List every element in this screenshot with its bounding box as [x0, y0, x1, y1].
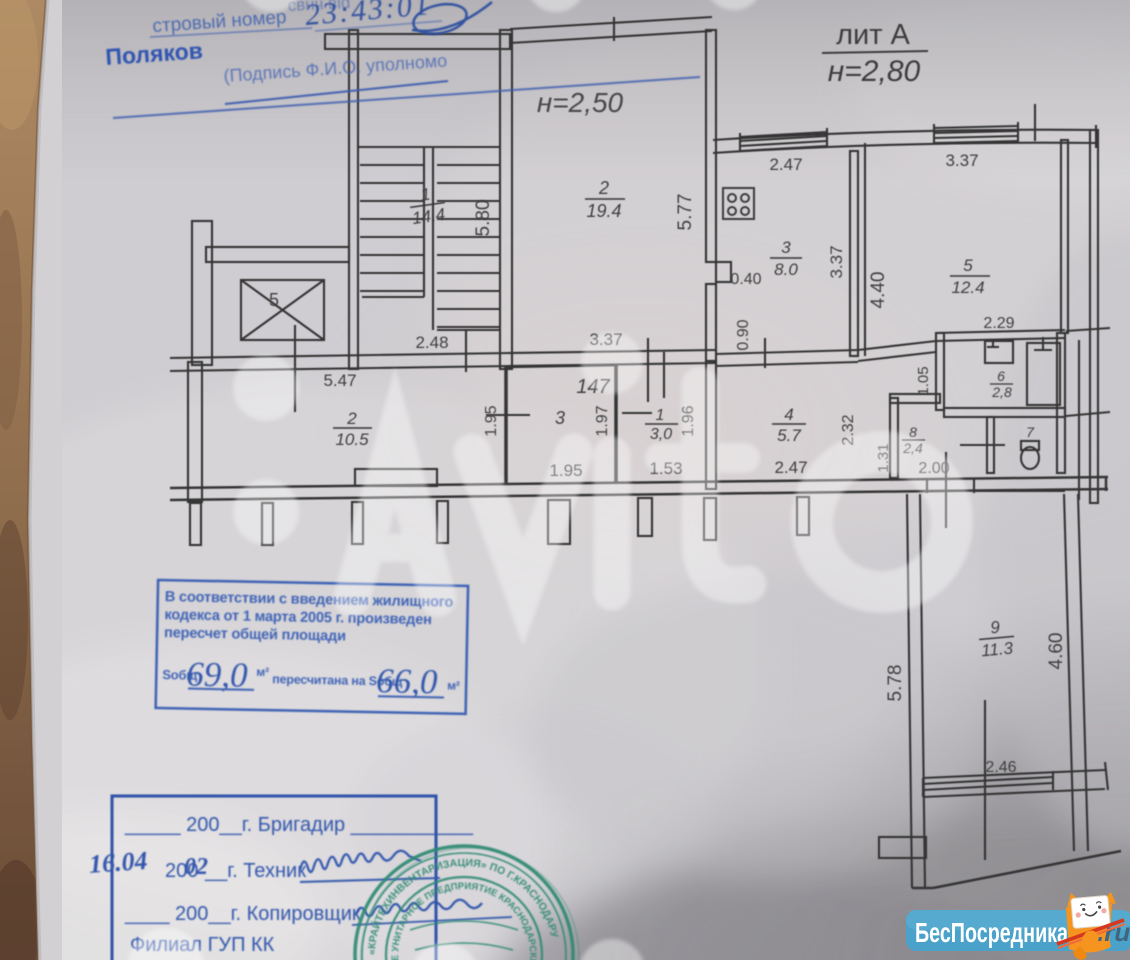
svg-text:5: 5: [963, 256, 973, 275]
svg-text:19.4: 19.4: [586, 201, 621, 221]
svg-text:1.95: 1.95: [483, 405, 500, 436]
svg-text:2,8: 2,8: [991, 384, 1012, 400]
svg-text:0.90: 0.90: [735, 319, 752, 350]
svg-text:____ 200__г. Копировщик: ____ 200__г. Копировщик: [124, 903, 361, 925]
svg-text:4: 4: [784, 405, 793, 424]
svg-text:7: 7: [1026, 424, 1035, 440]
svg-text:м²: м²: [447, 679, 460, 693]
svg-text:3.37: 3.37: [827, 245, 846, 278]
svg-text:5.80: 5.80: [473, 200, 494, 237]
svg-text:1.05: 1.05: [915, 366, 932, 395]
svg-text:3,0: 3,0: [650, 426, 672, 443]
svg-text:4.40: 4.40: [868, 272, 889, 309]
svg-text:12.4: 12.4: [951, 278, 984, 297]
svg-text:3.37: 3.37: [945, 151, 978, 170]
svg-text:6: 6: [997, 368, 1005, 384]
svg-text:8.0: 8.0: [774, 260, 798, 279]
svg-text:м²: м²: [256, 665, 269, 679]
svg-text:1: 1: [656, 407, 665, 424]
svg-text:_____ 200__г. Бригадир ______: _____ 200__г. Бригадир ___________: [124, 814, 474, 836]
svg-text:5: 5: [269, 290, 279, 310]
svg-text:2.46: 2.46: [985, 759, 1016, 776]
svg-text:5.47: 5.47: [323, 371, 356, 390]
svg-text:3: 3: [555, 408, 565, 428]
svg-text:5.78: 5.78: [885, 665, 906, 702]
svg-text:н=2,80: н=2,80: [828, 55, 921, 88]
svg-text:4.60: 4.60: [1046, 633, 1067, 670]
svg-text:2.29: 2.29: [983, 315, 1014, 332]
svg-text:2.47: 2.47: [769, 155, 802, 174]
svg-text:0.40: 0.40: [730, 271, 761, 288]
svg-text:5.77: 5.77: [675, 194, 696, 231]
svg-text:3: 3: [781, 238, 791, 257]
svg-text:лит А: лит А: [836, 19, 910, 51]
svg-text:16.04: 16.04: [88, 846, 148, 879]
svg-text:11.3: 11.3: [980, 639, 1014, 661]
svg-text:2.48: 2.48: [415, 333, 448, 352]
svg-text:5.7: 5.7: [777, 426, 801, 445]
svg-text:БесПосредника: БесПосредника: [915, 917, 1068, 948]
svg-text:2: 2: [346, 409, 357, 428]
svg-text:2.47: 2.47: [774, 458, 807, 477]
svg-text:02: 02: [184, 854, 208, 880]
svg-text:2: 2: [598, 178, 609, 198]
svg-text:1.97: 1.97: [594, 405, 611, 436]
svg-text:н=2,50: н=2,50: [537, 87, 624, 118]
svg-text:66,0: 66,0: [376, 661, 438, 701]
svg-text:10.5: 10.5: [335, 430, 369, 449]
svg-text:__г. Техник: __г. Техник: [204, 860, 306, 882]
